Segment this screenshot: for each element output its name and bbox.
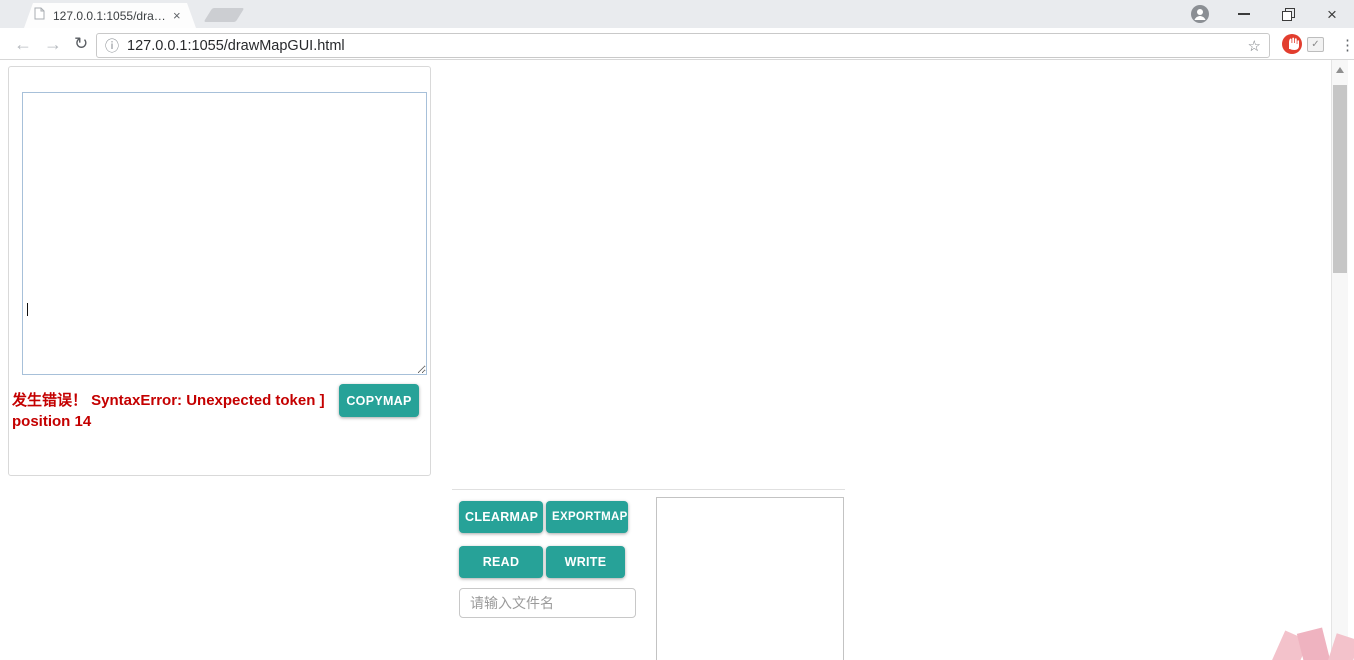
- tab-title: 127.0.0.1:1055/drawMa: [53, 9, 171, 23]
- clearmap-button[interactable]: CLEARMAP: [459, 501, 543, 533]
- copymap-button[interactable]: COPYMAP: [339, 384, 419, 417]
- page-scrollbar[interactable]: [1331, 60, 1348, 660]
- restore-button[interactable]: [1266, 0, 1310, 28]
- map-canvas[interactable]: [450, 67, 863, 481]
- window-controls: ×: [1178, 0, 1354, 28]
- watermark-shape: [1324, 633, 1354, 660]
- watermark-shape: [1297, 628, 1333, 660]
- info-icon[interactable]: ⓘ: [105, 36, 119, 56]
- write-button[interactable]: WRITE: [546, 546, 625, 578]
- matrix-textarea[interactable]: [22, 92, 427, 375]
- url-text: 127.0.0.1:1055/drawMapGUI.html: [127, 38, 1248, 54]
- scroll-up-icon[interactable]: [1336, 67, 1344, 73]
- window-close-button[interactable]: ×: [1310, 0, 1354, 28]
- text-caret: [27, 303, 28, 316]
- read-button[interactable]: READ: [459, 546, 543, 578]
- profile-icon[interactable]: [1178, 0, 1222, 28]
- filename-input[interactable]: [459, 588, 636, 618]
- exportmap-button[interactable]: EXPORTMAP: [546, 501, 628, 533]
- divider: [452, 489, 845, 490]
- new-tab-button[interactable]: [204, 8, 245, 22]
- checkmark-extension-icon[interactable]: ✓: [1307, 37, 1324, 52]
- back-icon[interactable]: ←: [14, 34, 32, 54]
- scrollbar-thumb[interactable]: [1333, 85, 1347, 273]
- forward-icon[interactable]: →: [44, 34, 62, 54]
- bookmark-star-icon[interactable]: ☆: [1248, 37, 1261, 55]
- browser-tab[interactable]: 127.0.0.1:1055/drawMa ×: [24, 3, 196, 28]
- browser-window: 127.0.0.1:1055/drawMa × × ← → ↻ ⓘ 127.0.…: [0, 0, 1354, 660]
- tab-close-icon[interactable]: ×: [173, 8, 181, 23]
- reload-icon[interactable]: ↻: [74, 34, 88, 54]
- minimize-button[interactable]: [1222, 0, 1266, 28]
- output-box[interactable]: [656, 497, 844, 660]
- tileset-canvas[interactable]: [896, 67, 1320, 660]
- tab-bar: 127.0.0.1:1055/drawMa × ×: [0, 0, 1354, 28]
- col-header-row: [0, 74, 440, 88]
- menu-kebab-icon[interactable]: ⋮: [1340, 36, 1354, 54]
- address-bar[interactable]: ⓘ 127.0.0.1:1055/drawMapGUI.html ☆: [96, 33, 1270, 58]
- adblock-extension-icon[interactable]: [1281, 33, 1303, 55]
- error-text: 发生错误！ SyntaxError: Unexpected token ] po…: [12, 390, 348, 432]
- page-favicon-icon: [34, 7, 45, 25]
